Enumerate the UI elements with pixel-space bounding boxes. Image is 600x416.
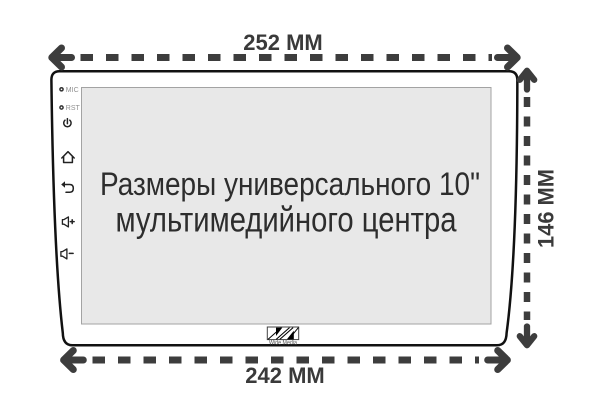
svg-text:242 ММ: 242 ММ (245, 363, 324, 388)
svg-text:мультимедийного центра: мультимедийного центра (116, 201, 457, 240)
svg-text:MIC: MIC (66, 87, 79, 94)
svg-text:146 ММ: 146 ММ (533, 169, 558, 248)
svg-text:RST: RST (66, 105, 81, 112)
svg-text:252 ММ: 252 ММ (243, 30, 322, 55)
svg-text:Размеры универсального 10": Размеры универсального 10" (100, 166, 480, 202)
svg-text:Wide Media: Wide Media (269, 341, 298, 347)
